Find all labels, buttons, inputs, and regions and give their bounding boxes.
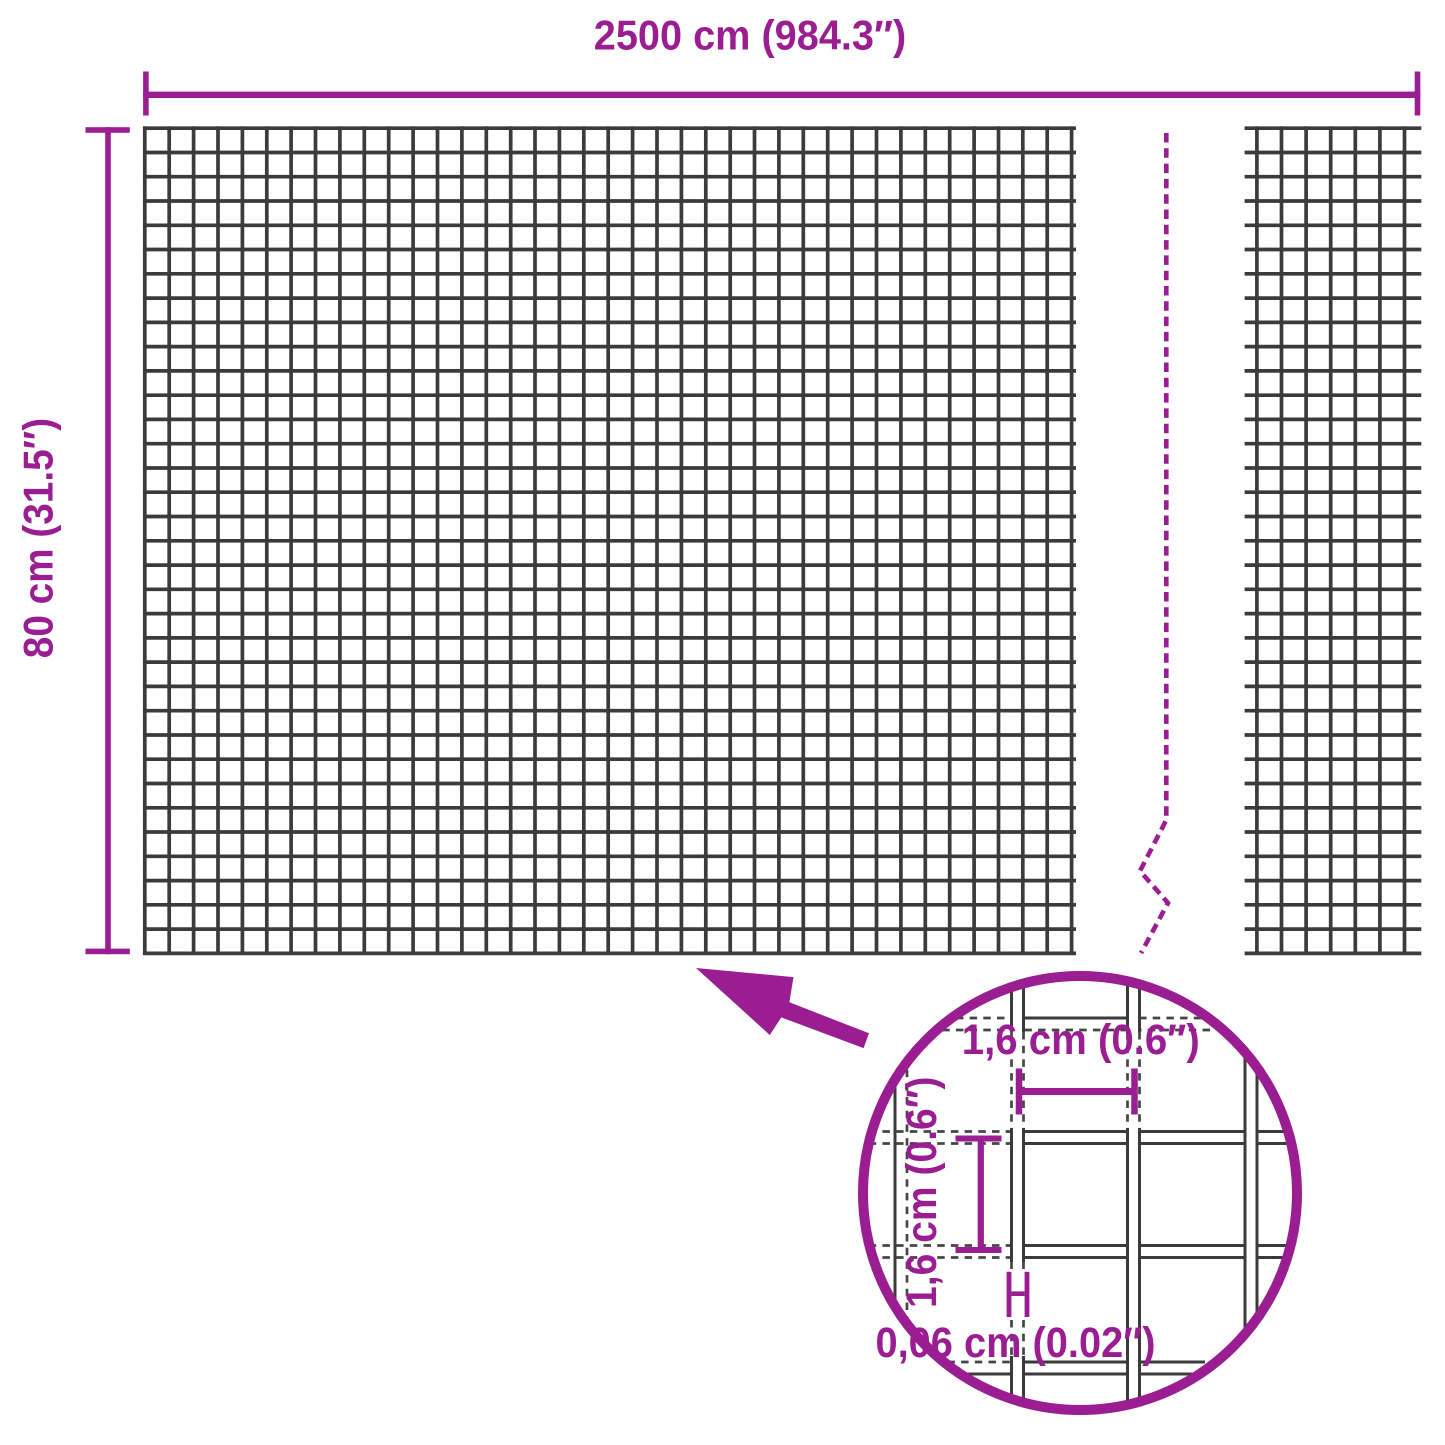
- svg-text:1,6 cm (0.6″): 1,6 cm (0.6″): [962, 1016, 1200, 1064]
- svg-text:2500 cm (984.3″): 2500 cm (984.3″): [594, 11, 906, 58]
- svg-text:1,6 cm (0.6″): 1,6 cm (0.6″): [898, 1077, 946, 1309]
- svg-text:0,06 cm (0.02″): 0,06 cm (0.02″): [876, 1319, 1156, 1367]
- svg-text:80 cm (31.5″): 80 cm (31.5″): [15, 418, 62, 658]
